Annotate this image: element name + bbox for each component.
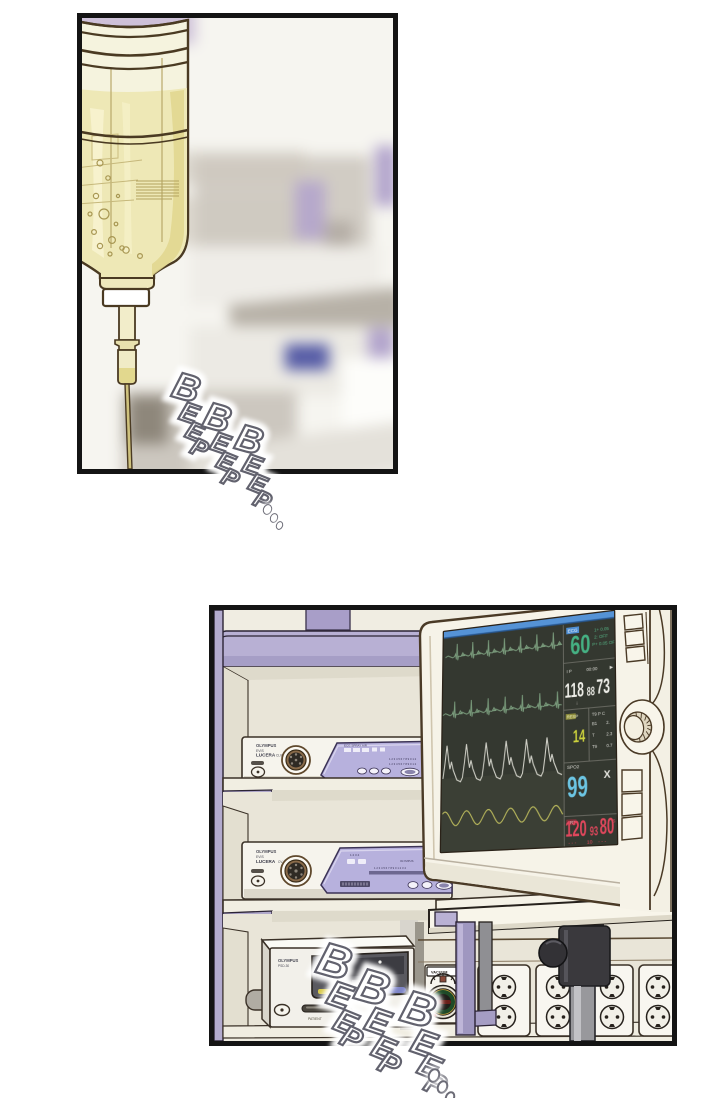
- svg-text:99: 99: [567, 769, 588, 804]
- svg-text:88: 88: [587, 684, 595, 698]
- svg-text:PATIENT: PATIENT: [308, 1017, 322, 1021]
- svg-text:OLYMPUS: OLYMPUS: [400, 859, 414, 863]
- svg-text:00:00: 00:00: [586, 665, 598, 672]
- svg-text:2.: 2.: [606, 720, 610, 725]
- svg-text:118: 118: [565, 679, 585, 704]
- svg-text:T9: T9: [592, 744, 597, 749]
- svg-text:LUCERA: LUCERA: [256, 859, 276, 864]
- svg-text:- - -: - - -: [568, 839, 577, 845]
- svg-text:OLYMPUS: OLYMPUS: [278, 958, 299, 963]
- svg-text:I P: I P: [566, 668, 572, 674]
- svg-text:- - -: - - -: [598, 838, 607, 844]
- svg-text:X: X: [604, 768, 611, 780]
- svg-text:2.3: 2.3: [606, 732, 612, 737]
- svg-text:1 2 3 4: 1 2 3 4: [350, 853, 360, 857]
- svg-text:73: 73: [596, 675, 610, 699]
- svg-text:OLYMPUS: OLYMPUS: [256, 743, 277, 748]
- svg-text:0.7: 0.7: [606, 743, 612, 748]
- svg-text:B1: B1: [592, 721, 597, 726]
- svg-text:1 2 3 4 5 6 7 8 9 0 1 2: 1 2 3 4 5 6 7 8 9 0 1 2: [389, 757, 417, 761]
- svg-text:ECG SPRAY AIR: ECG SPRAY AIR: [344, 744, 368, 748]
- svg-text:80: 80: [600, 813, 615, 839]
- svg-text:LUCERA: LUCERA: [256, 753, 276, 758]
- svg-text:OLYMPUS: OLYMPUS: [256, 849, 277, 854]
- svg-text:PSD-30: PSD-30: [278, 964, 289, 968]
- svg-text:14: 14: [573, 725, 586, 746]
- svg-text:10: 10: [587, 839, 593, 845]
- svg-text:1 2 3 4 5 6 7 8 9 0 1 2: 1 2 3 4 5 6 7 8 9 0 1 2: [389, 762, 417, 766]
- svg-text:60: 60: [570, 629, 590, 661]
- svg-text:120: 120: [565, 816, 587, 842]
- svg-text:1 2 3 4 5 6 7 8 9 0 1 2 3 4: 1 2 3 4 5 6 7 8 9 0 1 2 3 4: [374, 866, 406, 870]
- svg-text:93: 93: [590, 824, 598, 838]
